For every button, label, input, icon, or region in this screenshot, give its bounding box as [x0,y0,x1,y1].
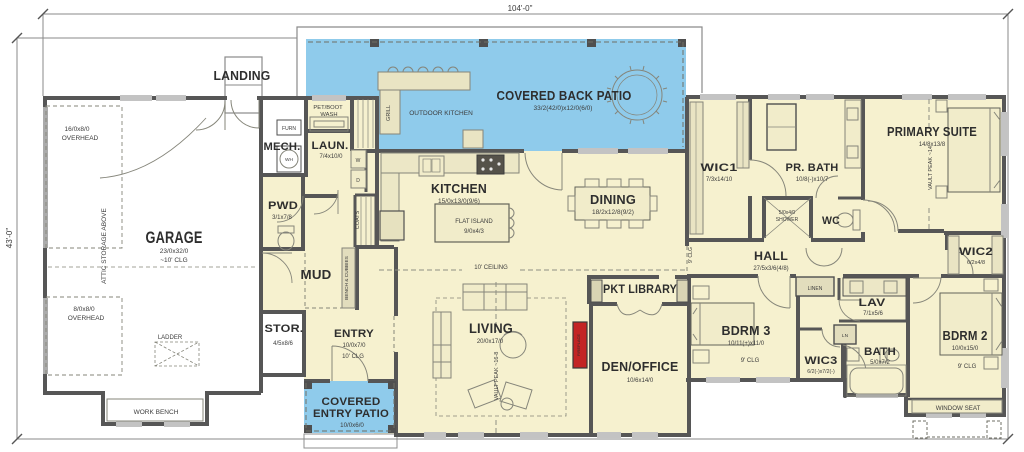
svg-text:18/2x12/8(9/2): 18/2x12/8(9/2) [592,209,634,216]
svg-text:7/4x10/0: 7/4x10/0 [319,154,343,160]
svg-text:15/0x13/0(9/6): 15/0x13/0(9/6) [438,198,480,205]
svg-text:ATTIC STORAGE ABOVE: ATTIC STORAGE ABOVE [101,208,108,284]
svg-text:COATS: COATS [355,210,361,229]
svg-text:FLAT ISLAND: FLAT ISLAND [455,219,493,225]
svg-text:STOR.: STOR. [265,323,304,335]
svg-text:COVERED: COVERED [322,396,381,408]
svg-text:104'-0": 104'-0" [508,4,533,13]
svg-text:PWD: PWD [268,200,298,212]
svg-text:~10' CLG: ~10' CLG [160,257,187,264]
svg-text:WIC1: WIC1 [701,162,738,174]
svg-text:10/0x7/0: 10/0x7/0 [342,343,366,349]
svg-text:PR. BATH: PR. BATH [786,162,839,174]
svg-text:8/0x8/0: 8/0x8/0 [73,306,95,313]
svg-text:PRIMARY SUITE: PRIMARY SUITE [887,124,977,139]
svg-text:7/3x14/10: 7/3x14/10 [706,177,733,183]
svg-text:WC: WC [822,215,840,227]
svg-text:10/8(-)x10/7: 10/8(-)x10/7 [796,177,829,183]
svg-text:WH: WH [285,157,294,163]
svg-text:LAUN.: LAUN. [312,140,349,152]
svg-text:BDRM 2: BDRM 2 [943,329,988,343]
svg-text:VAULT PEAK ~16-8: VAULT PEAK ~16-8 [494,352,500,401]
svg-text:ENTRY: ENTRY [334,328,374,340]
svg-text:3/1x7/8: 3/1x7/8 [272,215,292,221]
svg-text:BDRM 3: BDRM 3 [722,324,771,338]
svg-text:PET/BOOT: PET/BOOT [313,105,343,111]
svg-text:23/0x32/0: 23/0x32/0 [160,248,189,255]
svg-text:6/2(-)x7/2(-): 6/2(-)x7/2(-) [807,369,835,375]
svg-text:16/0x8/0: 16/0x8/0 [65,126,90,133]
svg-text:D: D [356,178,360,184]
svg-text:LAV: LAV [859,297,887,309]
svg-text:WINDOW SEAT: WINDOW SEAT [936,405,981,412]
svg-text:MUD: MUD [301,268,332,282]
svg-text:OUTDOOR KITCHEN: OUTDOOR KITCHEN [409,110,473,117]
svg-text:27/5x3/6(4/8): 27/5x3/6(4/8) [753,266,788,272]
svg-text:KITCHEN: KITCHEN [431,182,487,196]
svg-text:6/2x4/8: 6/2x4/8 [967,260,985,266]
svg-text:DEN/OFFICE: DEN/OFFICE [602,359,679,374]
svg-text:BENCH & CUBBIES: BENCH & CUBBIES [344,256,350,300]
svg-text:OVERHEAD: OVERHEAD [62,135,99,142]
svg-text:9' CLG: 9' CLG [741,358,760,364]
svg-text:PKT LIBRARY: PKT LIBRARY [603,282,677,296]
svg-text:5/0x4/0: 5/0x4/0 [779,210,796,216]
svg-text:LANDING: LANDING [214,69,271,83]
svg-text:WASH: WASH [320,112,337,118]
svg-text:SHOWER: SHOWER [776,217,799,223]
svg-text:FIREPLACE: FIREPLACE [576,334,581,357]
svg-text:10' CLG: 10' CLG [342,354,364,360]
svg-text:9' CLG: 9' CLG [958,364,977,370]
svg-text:HALL: HALL [754,249,788,263]
svg-text:10/11(+)x11/0: 10/11(+)x11/0 [728,341,765,347]
svg-text:BATH: BATH [864,346,896,358]
svg-text:LN: LN [842,333,849,339]
svg-text:33/2(42/0)x12/0(6/0): 33/2(42/0)x12/0(6/0) [534,105,593,112]
svg-text:20/0x17/0: 20/0x17/0 [477,339,504,345]
svg-text:W: W [356,158,361,164]
svg-text:OVERHEAD: OVERHEAD [68,315,105,322]
svg-text:COVERED BACK PATIO: COVERED BACK PATIO [497,89,632,103]
svg-text:WIC3: WIC3 [805,355,838,367]
svg-text:43'-0": 43'-0" [5,228,14,249]
svg-text:9/0x4/3: 9/0x4/3 [464,229,484,235]
svg-text:LINEN: LINEN [808,286,823,292]
svg-text:GARAGE: GARAGE [146,228,203,247]
svg-text:VAULT PEAK ~14: VAULT PEAK ~14 [928,146,934,190]
svg-text:MECH.: MECH. [264,141,301,153]
svg-text:LADDER: LADDER [158,335,183,341]
svg-text:WIC2: WIC2 [959,246,993,258]
svg-text:7/1x5/6: 7/1x5/6 [863,311,883,317]
svg-text:10' CEILING: 10' CEILING [474,265,508,271]
svg-text:GRILL: GRILL [386,105,392,121]
svg-text:10/6x14/0: 10/6x14/0 [627,378,654,384]
svg-text:10/0x15/0: 10/0x15/0 [952,346,979,352]
svg-text:4/5x8/6: 4/5x8/6 [273,341,293,347]
svg-text:5/0x7/2: 5/0x7/2 [870,360,890,366]
svg-text:WORK BENCH: WORK BENCH [134,409,179,416]
svg-text:DINING: DINING [590,193,636,207]
svg-text:FURN: FURN [282,126,296,132]
svg-text:10/0x6/0: 10/0x6/0 [340,422,364,429]
svg-text:ENTRY PATIO: ENTRY PATIO [313,408,389,420]
svg-text:9' CLG: 9' CLG [688,247,694,263]
svg-text:LIVING: LIVING [469,320,513,336]
